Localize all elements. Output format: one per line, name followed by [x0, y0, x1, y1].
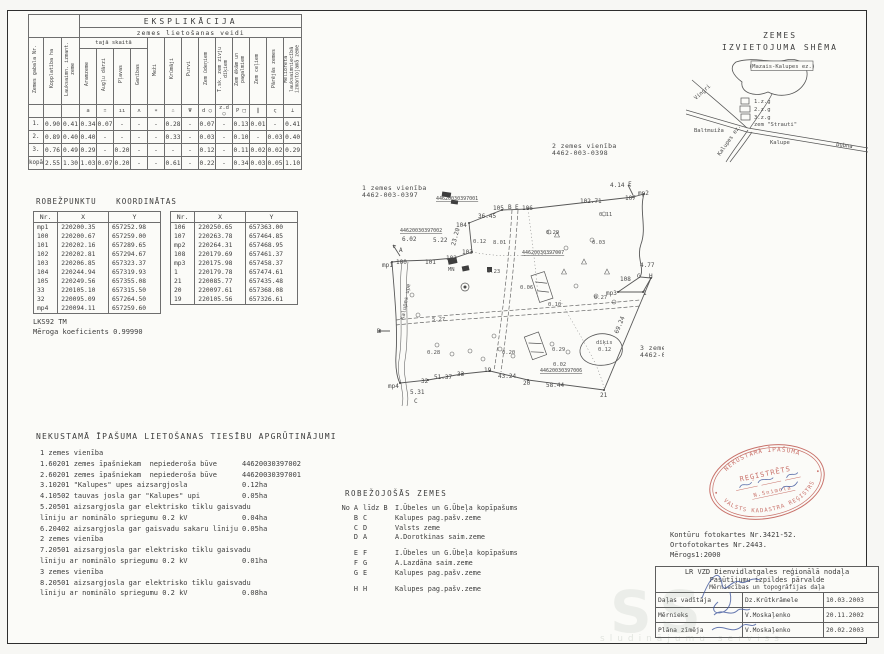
value-cell: - — [165, 144, 182, 157]
boundary-letter-to: E — [358, 569, 395, 579]
value-cell: 0.05 — [267, 157, 284, 170]
value-cell: 0.22 — [199, 157, 216, 170]
map-label: 23.20 — [450, 227, 462, 247]
explication-row: 2.0.890.400.40----0.33-0.03-0.10-0.030.4… — [29, 131, 302, 144]
value-cell: - — [182, 118, 199, 131]
map-label: 0.20 — [502, 350, 515, 356]
encumbrance-line: 1 zemes vienība — [40, 449, 301, 460]
coord-x: 220095.09 — [58, 295, 109, 304]
value-cell: - — [131, 144, 148, 157]
coordinate-row: 105220249.56657355.08 — [34, 277, 161, 286]
encumbrance-line: 4.10502 tauvas josla gar "Kalupes" upi0.… — [40, 492, 301, 503]
map-label: G — [637, 273, 641, 280]
name-cell: V.Moskaļenko — [743, 608, 824, 623]
neighbor-name: A.Lazdāna saim.zeme — [395, 559, 473, 569]
map-label: 0.10 — [548, 302, 561, 308]
encumbrance-line: 8.20501 aizsargjosla gar elektrisko tīkl… — [40, 579, 301, 590]
point-number: mp3 — [171, 259, 195, 268]
bordering-row: FGA.Lazdāna saim.zeme — [330, 559, 518, 569]
value-cell: 0.41 — [62, 118, 80, 131]
column-header: Zem ūdeņiem — [199, 38, 216, 105]
boundary-letter-to: F — [358, 549, 395, 559]
value-cell: 0.40 — [62, 131, 80, 144]
symbol-cell: P □ — [233, 105, 250, 118]
coord-y: 657461.37 — [245, 250, 297, 259]
map-label: 5.27 — [432, 317, 445, 323]
coordinates-table-right: Nr. X Y 106220250.65657363.00107220263.7… — [170, 211, 298, 305]
bordering-list: No Alīdz BI.Ūbeles un G.Ūbeļa kopīpašums… — [330, 504, 518, 594]
boundary-letter-from: H — [330, 585, 358, 595]
map-label: Kalupes upe — [400, 283, 412, 320]
value-cell: 0.28 — [165, 118, 182, 131]
location-schema: (Mazais-Kalupes ez.)VingriBaltmuiža1.z.g… — [686, 54, 868, 164]
encumbrance-line: 6.20402 aizsargjosla gar gaisvadu sakaru… — [40, 525, 301, 536]
symbol-cell: ∗ — [148, 105, 165, 118]
value-cell: 0.41 — [284, 118, 302, 131]
column-header: Pļavas — [114, 48, 131, 104]
coord-x: 220094.11 — [58, 304, 109, 314]
explication-title: EKSPLIKĀCIJA — [80, 15, 302, 28]
col-x: X — [58, 212, 109, 223]
explication-row: kopā2.551.301.030.070.20--0.61-0.22-0.34… — [29, 157, 302, 170]
neighbor-name: Kalupes pag.pašv.zeme — [395, 514, 481, 524]
value-cell: 0.76 — [44, 144, 62, 157]
symbol-cell: ∴ — [165, 105, 182, 118]
coordinate-row: 103220206.85657323.37 — [34, 259, 161, 268]
value-cell: - — [182, 144, 199, 157]
point-number: 107 — [171, 232, 195, 241]
watermark-tagline: sludinājumu serviss — [600, 634, 784, 644]
point-number: 108 — [171, 250, 195, 259]
boundary-letter-to: C — [358, 514, 395, 524]
point-number: 105 — [34, 277, 58, 286]
point-number: mp4 — [34, 304, 58, 314]
encumbrance-value: 0.05ha — [242, 492, 267, 503]
stamp-officer-name: N.Snimola — [753, 485, 792, 499]
map-label: 4.14 — [610, 182, 625, 189]
stamp-registered-label: REĢISTRĒTS — [739, 464, 792, 485]
map-label: 106 — [522, 205, 533, 212]
coordinate-row: 100220200.67657259.00 — [34, 232, 161, 241]
outbuildings — [461, 272, 553, 360]
map-label: 102.71 — [580, 198, 602, 205]
value-cell: - — [131, 131, 148, 144]
value-cell: - — [216, 118, 233, 131]
coordinate-row: 20220097.61657368.08 — [171, 286, 298, 295]
map-label: 4462-003-0398 — [552, 149, 608, 157]
value-cell: - — [148, 144, 165, 157]
value-cell: 0.12 — [199, 144, 216, 157]
coordinate-row: 19220105.56657326.61 — [171, 295, 298, 305]
value-cell: 0.03 — [250, 157, 267, 170]
col-nr: Nr. — [171, 212, 195, 223]
row-label: 2. — [29, 131, 44, 144]
boundary-letter-from: E — [330, 549, 358, 559]
map-label: 44620030397002 — [400, 228, 442, 234]
encumbrance-text: 1 zemes vienība — [40, 449, 242, 460]
map-label: 21 — [600, 392, 608, 399]
point-number: 33 — [34, 286, 58, 295]
symbol-cell: d ○ — [199, 105, 216, 118]
encumbrance-text: 3 zemes vienība — [40, 568, 242, 579]
encumbrance-text: līniju ar nominālo spriegumu 0.2 kV — [40, 557, 242, 568]
map-label: 6.02 — [402, 236, 417, 243]
value-cell: 0.07 — [199, 118, 216, 131]
point-number: 32 — [34, 295, 58, 304]
map-label: 51.37 — [434, 374, 452, 381]
map-label: 0.12 — [473, 239, 486, 245]
boundary-letter-from: F — [330, 559, 358, 569]
map-label: 0.28 — [427, 350, 440, 356]
explication-row: 1.0.900.410.340.07---0.28-0.07-0.130.01-… — [29, 118, 302, 131]
map-label: B — [508, 204, 512, 211]
map-label: mp1 — [382, 262, 393, 269]
org-line1: LR VZD Dienvidlatgales reģionālā nodaļa — [658, 568, 876, 576]
boundary-letter-to: A — [358, 533, 395, 543]
map-label: 0.03 — [592, 240, 605, 246]
encumbrance-line: 1.60201 zemes īpašniekam nepiederoša būv… — [40, 460, 301, 471]
value-cell: 0.89 — [44, 131, 62, 144]
coord-y: 657363.00 — [245, 223, 297, 233]
value-cell: 0.29 — [284, 144, 302, 157]
coord-y: 657435.48 — [245, 277, 297, 286]
boundary-letter-from: No A — [330, 504, 358, 514]
map-label: 4462-003-0399 — [640, 351, 664, 359]
value-cell: 0.29 — [80, 144, 97, 157]
coord-x: 220250.65 — [195, 223, 246, 233]
coordinate-row: 101220202.16657289.65 — [34, 241, 161, 250]
symbol-cell: ∷ — [97, 105, 114, 118]
point-number: 1 — [171, 268, 195, 277]
boundary-letter-to: līdz B — [358, 504, 395, 514]
map-label: 0.06 — [520, 285, 533, 291]
map-label: H — [649, 273, 653, 280]
value-cell: - — [148, 131, 165, 144]
point-number: 106 — [171, 223, 195, 233]
coord-x: 220200.35 — [58, 223, 109, 233]
registration-stamp: NEKUSTAMĀ ĪPAŠUMA VALSTS KADASTRA REĢIST… — [694, 430, 840, 534]
encumbrance-text: 4.10502 tauvas josla gar "Kalupes" upi — [40, 492, 242, 503]
coord-x: 220105.56 — [195, 295, 246, 305]
value-cell: - — [131, 118, 148, 131]
coord-x: 220249.56 — [58, 277, 109, 286]
map-label: 36.45 — [478, 213, 496, 220]
schema-label: Dubna — [836, 142, 853, 150]
schema-label: 3.z.g — [754, 115, 771, 121]
map-label: 103 — [462, 249, 473, 256]
bordering-row: BCKalupes pag.pašv.zeme — [330, 514, 518, 524]
column-header: Aramzeme — [80, 48, 97, 104]
symbol-cell — [44, 105, 62, 118]
encumbrance-line: līniju ar nominālo spriegumu 0.2 kV0.04h… — [40, 514, 301, 525]
schema-label: Kalupe — [770, 140, 790, 146]
map-label: 69.24 — [613, 315, 626, 335]
map-label: 0.12 — [598, 347, 611, 353]
value-cell: 1.30 — [62, 157, 80, 170]
encumbrance-value: 0.12ha — [242, 481, 267, 492]
coord-y: 657264.50 — [108, 295, 160, 304]
column-header: Meliorētā lauksaimniecībā izmantojamā ze… — [284, 38, 302, 105]
datum-label: LKS92 TM — [33, 318, 67, 326]
map-label: dīķis — [596, 340, 613, 346]
value-cell: 0.03 — [267, 131, 284, 144]
coordinate-row: 108220179.69657461.37 — [171, 250, 298, 259]
neighbor-name: Valsts zeme — [395, 524, 440, 534]
coordinates-table-left: Nr. X Y mp1220200.35657252.98100220200.6… — [33, 211, 161, 314]
value-cell: 2.55 — [44, 157, 62, 170]
map-label: 0.27 — [594, 295, 607, 301]
value-cell: 0.90 — [44, 118, 62, 131]
schema-label: 1.z.g — [754, 99, 771, 105]
coord-x: 220244.94 — [58, 268, 109, 277]
point-number: 101 — [34, 241, 58, 250]
map-label: 44620030397007 — [522, 250, 564, 256]
internal-boundaries — [472, 209, 604, 388]
map-label: 5.31 — [410, 389, 425, 396]
neighbor-name: A.Dorotkinas saim.zeme — [395, 533, 485, 543]
column-header: Zem ēkām un pagalmiem — [233, 38, 250, 105]
symbol-row: a∷ııʌ∗∴Ψd ○z.d ○P □∥ς⊥ — [29, 105, 302, 118]
neighbor-name: Kalupes pag.pašv.zeme — [395, 585, 481, 595]
schema-title-line1: ZEMES — [690, 30, 870, 42]
map-label: mp4 — [388, 383, 399, 390]
point-number: 102 — [34, 250, 58, 259]
row-label: 1. — [29, 118, 44, 131]
symbol-cell: Ψ — [182, 105, 199, 118]
point-number: 103 — [34, 259, 58, 268]
scale-coefficient: Mēroga koeficients 0.99990 — [33, 328, 143, 336]
encumbrance-text: 2.60201 zemes īpašniekam nepiederoša būv… — [40, 471, 242, 482]
bordering-row: HHKalupes pag.pašv.zeme — [330, 585, 518, 595]
value-cell: 1.10 — [284, 157, 302, 170]
coord-y: 657289.65 — [108, 241, 160, 250]
map-label: 101 — [425, 259, 436, 266]
column-header: Pārējās zemes — [267, 38, 284, 105]
map-scale: Mērogs1:2000 — [670, 550, 796, 560]
boundary-letter-to: D — [358, 524, 395, 534]
encumbrance-line: līniju ar nominālo spriegumu 0.2 kV0.01h… — [40, 557, 301, 568]
encumbrance-line: 3.10201 "Kalupes" upes aizsargjosla0.12h… — [40, 481, 301, 492]
map-label: 20 — [523, 380, 531, 387]
coord-y: 657294.67 — [108, 250, 160, 259]
value-cell: 0.34 — [233, 157, 250, 170]
encumbrance-value: 0.04ha — [242, 514, 267, 525]
encumbrance-line: 3 zemes vienība — [40, 568, 301, 579]
coordinate-row: 32220095.09657264.50 — [34, 295, 161, 304]
coordinate-row: 33220105.10657315.50 — [34, 286, 161, 295]
coord-x: 220179.69 — [195, 250, 246, 259]
column-header: Zem ceļiem — [250, 38, 267, 105]
coord-x: 220097.61 — [195, 286, 246, 295]
neighbor-name: I.Ūbeles un G.Ūbeļa kopīpašums — [395, 504, 518, 514]
map-label: 104 — [456, 222, 467, 229]
value-cell: - — [216, 131, 233, 144]
value-cell: - — [216, 144, 233, 157]
coord-y: 657474.61 — [245, 268, 297, 277]
coordinate-row: 106220250.65657363.00 — [171, 223, 298, 233]
encumbrance-text: 6.20402 aizsargjosla gar gaisvadu sakaru… — [40, 525, 242, 536]
map-label: 0.02 — [553, 362, 566, 368]
map-label: 44620030397001 — [436, 196, 478, 202]
column-header: Kopplatība ha — [44, 38, 62, 105]
encumbrance-text: 2 zemes vienība — [40, 535, 242, 546]
symbol-cell: ς — [267, 105, 284, 118]
value-cell: 0.40 — [80, 131, 97, 144]
map-label: 32 — [421, 378, 429, 385]
map-label: F — [628, 181, 632, 188]
symbol-cell: a — [80, 105, 97, 118]
coord-x: 220200.67 — [58, 232, 109, 241]
schema-label: 2.z.g — [754, 107, 771, 113]
value-cell: - — [250, 131, 267, 144]
coord-y: 657315.50 — [108, 286, 160, 295]
point-number: mp1 — [34, 223, 58, 233]
coord-x: 220202.81 — [58, 250, 109, 259]
column-header: Zemes gabala Nr. — [29, 38, 44, 105]
column-header: Augļu dārzi — [97, 48, 114, 104]
coord-y: 657326.61 — [245, 295, 297, 305]
coord-x: 220179.78 — [195, 268, 246, 277]
coordinate-row: mp2220264.31657468.95 — [171, 241, 298, 250]
boundary-letter-to: H — [358, 585, 395, 595]
value-cell: - — [97, 131, 114, 144]
bordering-title: ROBEŽOJOŠĀS ZEMES — [345, 489, 447, 498]
map-label: 43.24 — [498, 373, 516, 380]
coord-x: 220263.78 — [195, 232, 246, 241]
bordering-row: DAA.Dorotkinas saim.zeme — [330, 533, 518, 543]
schema-labels: (Mazais-Kalupes ez.)VingriBaltmuiža1.z.g… — [693, 61, 853, 157]
encumbrance-line: 2.60201 zemes īpašniekam nepiederoša būv… — [40, 471, 301, 482]
point-number: 20 — [171, 286, 195, 295]
map-label: 44620030397006 — [540, 368, 582, 374]
col-y: Y — [245, 212, 297, 223]
explication-subtitle: zemes lietošanas veidi — [80, 28, 302, 38]
symbol-cell — [62, 105, 80, 118]
coord-x: 220085.77 — [195, 277, 246, 286]
bordering-row: GEKalupes pag.pašv.zeme — [330, 569, 518, 579]
map-label: 58.44 — [546, 382, 564, 389]
column-header: Lauksaimn. izmant. zeme — [62, 38, 80, 105]
coord-x: 220202.16 — [58, 241, 109, 250]
coordinate-row: 104220244.94657319.93 — [34, 268, 161, 277]
boundary-letter-from: G — [330, 569, 358, 579]
col-x: X — [195, 212, 246, 223]
value-cell: 0.33 — [165, 131, 182, 144]
boundary-letter-from: B — [330, 514, 358, 524]
schema-title-line2: IZVIETOJUMA SHĒMA — [690, 42, 870, 54]
coord-x: 220105.10 — [58, 286, 109, 295]
value-cell: 0.07 — [97, 157, 114, 170]
explication-corner — [29, 15, 80, 38]
value-cell: 0.61 — [165, 157, 182, 170]
map-label: 4.77 — [640, 262, 655, 269]
column-header: T.sk. zem zivju dīķiem — [216, 38, 233, 105]
col-y: Y — [108, 212, 160, 223]
value-cell: - — [216, 157, 233, 170]
map-label: 0.11 — [599, 212, 612, 218]
schema-label: Baltmuiža — [694, 127, 724, 134]
explication-row: 3.0.760.490.29-0.20----0.12-0.110.020.02… — [29, 144, 302, 157]
col-nr: Nr. — [34, 212, 58, 223]
point-number: 100 — [34, 232, 58, 241]
encumbrance-value: 0.08ha — [242, 589, 267, 600]
value-cell: 0.10 — [233, 131, 250, 144]
bordering-row: No Alīdz BI.Ūbeles un G.Ūbeļa kopīpašums — [330, 504, 518, 514]
value-cell: - — [148, 118, 165, 131]
encumbrance-value: 0.05ha — [242, 525, 267, 536]
row-label: 3. — [29, 144, 44, 157]
map-label: 1 — [643, 290, 647, 297]
value-cell: 0.20 — [114, 157, 131, 170]
boundary-letter-from: D — [330, 533, 358, 543]
value-cell: - — [114, 131, 131, 144]
schema-label: zem "Strauti" — [754, 122, 797, 128]
date-cell: 20.11.2002 — [824, 608, 879, 623]
coord-y: 657368.08 — [245, 286, 297, 295]
schema-label: (Mazais-Kalupes ez.) — [749, 64, 815, 70]
coordinate-row: mp4220094.11657259.60 — [34, 304, 161, 314]
value-cell: 0.20 — [114, 144, 131, 157]
value-cell: 0.11 — [233, 144, 250, 157]
coord-y: 657319.93 — [108, 268, 160, 277]
column-group-header: tajā skaitā — [80, 38, 148, 49]
coord-x: 220175.98 — [195, 259, 246, 268]
symbol-cell — [29, 105, 44, 118]
explication-table: EKSPLIKĀCIJAzemes lietošanas veidiZemes … — [28, 14, 302, 170]
coordinate-row: 1220179.78657474.61 — [171, 268, 298, 277]
encumbrance-text: 5.20501 aizsargjosla gar elektrisko tīkl… — [40, 503, 242, 514]
map-label: MN — [448, 267, 455, 273]
map-label: 107 — [625, 195, 636, 202]
map-label: 19 — [484, 367, 492, 374]
column-header: Krūmāji — [165, 38, 182, 105]
encumbrance-text: līniju ar nominālo spriegumu 0.2 kV — [40, 589, 242, 600]
map-label: 8.01 — [493, 240, 506, 246]
footer-note: Kontūru fotokartes Nr.3421-52. Ortofotok… — [670, 530, 796, 560]
value-cell: 1.03 — [80, 157, 97, 170]
column-header: Meži — [148, 38, 165, 105]
coordinate-row: mp3220175.98657458.37 — [171, 259, 298, 268]
date-cell: 20.02.2003 — [824, 623, 879, 638]
boundary-letter-from: C — [330, 524, 358, 534]
map-label: C — [414, 398, 418, 405]
point-number: 19 — [171, 295, 195, 305]
map-label: 0.29 — [552, 347, 565, 353]
schema-roads — [686, 80, 868, 162]
symbol-cell: ıı — [114, 105, 131, 118]
point-number: 21 — [171, 277, 195, 286]
coordinate-row: 21220085.77657435.48 — [171, 277, 298, 286]
encumbrance-text: 8.20501 aizsargjosla gar elektrisko tīkl… — [40, 579, 242, 590]
map-label: 33 — [457, 371, 465, 378]
encumbrance-value: 44620030397001 — [242, 471, 301, 482]
value-cell: 0.03 — [199, 131, 216, 144]
value-cell: - — [182, 157, 199, 170]
map-label: 5.22 — [433, 237, 448, 244]
contour-photomap-ref: Kontūru fotokartes Nr.3421-52. — [670, 530, 796, 540]
coord-y: 657259.00 — [108, 232, 160, 241]
encumbrance-line: 2 zemes vienība — [40, 535, 301, 546]
map-label: 102 — [446, 255, 457, 262]
coord-x: 220264.31 — [195, 241, 246, 250]
value-cell: - — [182, 131, 199, 144]
symbol-cell: ʌ — [131, 105, 148, 118]
map-label: mp2 — [638, 190, 649, 197]
encumbrance-value: 44620030397002 — [242, 460, 301, 471]
trees — [410, 212, 616, 361]
schema-title: ZEMES IZVIETOJUMA SHĒMA — [690, 30, 870, 54]
encumbrance-line: 5.20501 aizsargjosla gar elektrisko tīkl… — [40, 503, 301, 514]
